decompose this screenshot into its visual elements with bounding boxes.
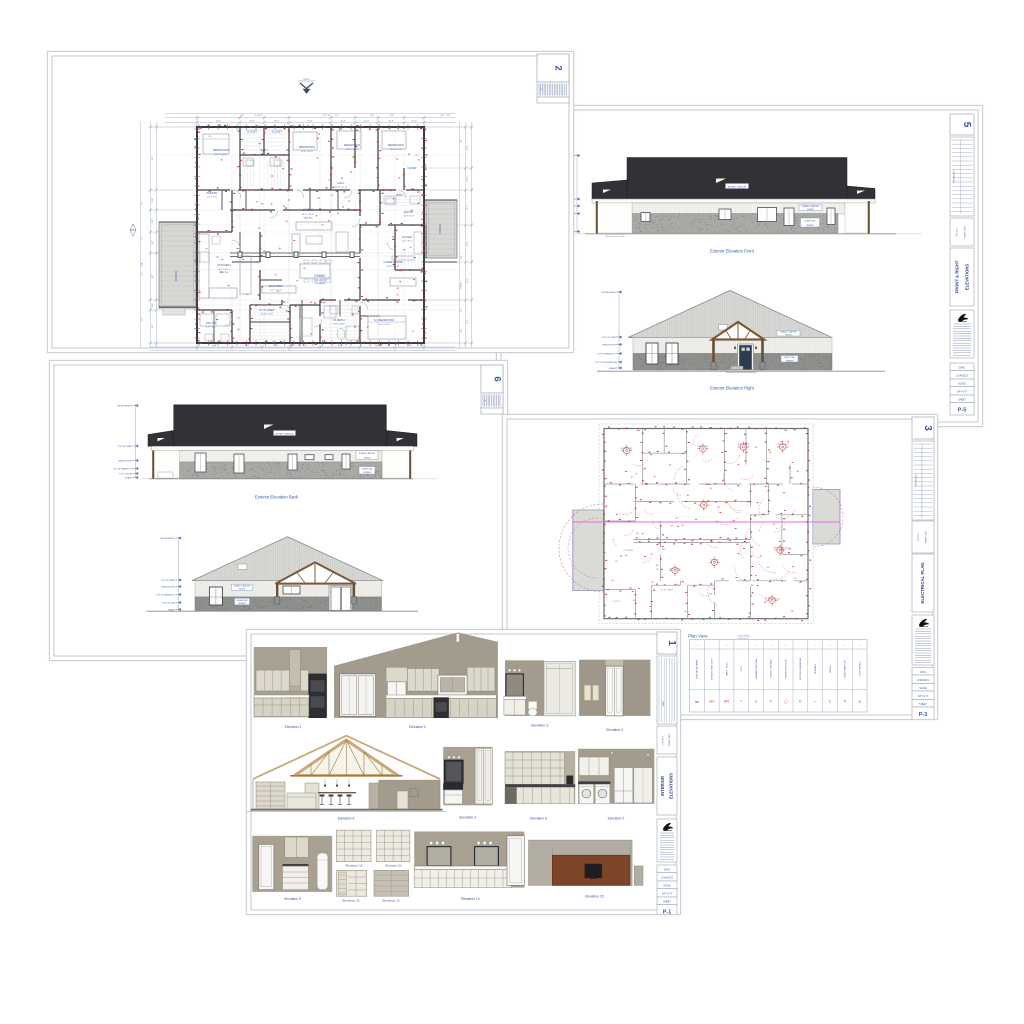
svg-text:VANITY LIGHT: VANITY LIGHT <box>725 661 728 675</box>
svg-text:BEDROOM: BEDROOM <box>621 448 632 450</box>
svg-text:⊙: ⊙ <box>755 700 758 704</box>
svg-text:SHEET: SHEET <box>958 399 966 401</box>
svg-text:GFI: GFI <box>396 294 399 296</box>
svg-text:12'-0" x 12'-6": 12'-0" x 12'-6" <box>301 151 314 153</box>
svg-text:VENEER: VENEER <box>238 603 246 605</box>
svg-text:Elevation 13: Elevation 13 <box>382 899 399 903</box>
svg-text:12'-2" x 12'-0": 12'-2" x 12'-0" <box>346 149 359 151</box>
svg-text:GFI: GFI <box>296 281 299 283</box>
svg-text:P-1: P-1 <box>663 910 671 915</box>
svg-text:LIVING AREA: LIVING AREA <box>737 635 750 638</box>
svg-text:8'-2": 8'-2" <box>255 115 259 117</box>
svg-text:11'-2": 11'-2" <box>467 145 469 150</box>
svg-text:SCALE: SCALE <box>958 382 966 385</box>
svg-text:8'-2": 8'-2" <box>328 115 332 117</box>
svg-text:WINDOW HDR: WINDOW HDR <box>602 344 616 346</box>
svg-text:WINDOW HDR: WINDOW HDR <box>118 460 132 462</box>
svg-text:GFI: GFI <box>412 331 415 333</box>
svg-text:GAME ROOM: GAME ROOM <box>773 546 787 549</box>
svg-text:GFI: GFI <box>724 700 730 704</box>
svg-text:7'-4": 7'-4" <box>142 237 144 241</box>
svg-text:GFI: GFI <box>409 247 412 249</box>
svg-text:BEDROOM: BEDROOM <box>344 143 360 147</box>
svg-text:VENEER: VENEER <box>806 225 814 227</box>
svg-text:8'-2": 8'-2" <box>323 115 327 117</box>
svg-text:7'-0" x 9'-6": 7'-0" x 9'-6" <box>207 197 217 199</box>
svg-text:1/4"=1'-0": 1/4"=1'-0" <box>957 391 968 394</box>
svg-text:—: — <box>784 644 787 647</box>
svg-text:BOARD & BATTEN: BOARD & BATTEN <box>780 331 797 334</box>
svg-text:14'-6" x 20'-2": 14'-6" x 20'-2" <box>218 269 231 271</box>
svg-text:1: 1 <box>666 640 677 646</box>
svg-text:PROJECT: PROJECT <box>662 735 664 745</box>
svg-text:BEDROOM: BEDROOM <box>388 143 404 147</box>
svg-text:GFI: GFI <box>799 582 802 584</box>
svg-text:—: — <box>829 644 832 647</box>
svg-text:GRAND OAKS: GRAND OAKS <box>964 225 967 238</box>
svg-text:GFI: GFI <box>256 202 259 204</box>
svg-text:BATH: BATH <box>261 148 268 152</box>
svg-text:DATE: DATE <box>959 366 965 369</box>
svg-text:9'-6": 9'-6" <box>152 156 154 160</box>
svg-text:PROJECT: PROJECT <box>918 532 920 542</box>
svg-text:Elevation 7: Elevation 7 <box>608 817 625 821</box>
svg-text:▬: ▬ <box>695 700 699 704</box>
svg-text:8'-2": 8'-2" <box>390 115 394 117</box>
svg-text:12'-4": 12'-4" <box>411 120 416 122</box>
svg-text:—: — <box>725 644 728 647</box>
svg-text:1/4"=1'-0": 1/4"=1'-0" <box>662 893 673 896</box>
svg-text:NORTH: NORTH <box>303 79 310 81</box>
svg-text:7'-4": 7'-4" <box>142 317 144 321</box>
svg-text:6'-8": 6'-8" <box>461 139 463 143</box>
svg-text:11'-2": 11'-2" <box>467 241 469 246</box>
svg-text:ELEVATIONS: ELEVATIONS <box>669 773 674 799</box>
svg-text:BEDROOM: BEDROOM <box>777 444 788 446</box>
svg-text:KITCHEN CHANDELIER: KITCHEN CHANDELIER <box>799 657 802 680</box>
svg-text:12'-4": 12'-4" <box>388 120 393 122</box>
svg-text:E: E <box>799 700 802 704</box>
svg-text:LIMESTONE: LIMESTONE <box>784 357 796 359</box>
svg-text:GFI: GFI <box>651 582 654 584</box>
svg-text:TOP OF WAINSCOT: TOP OF WAINSCOT <box>113 467 132 470</box>
svg-text:—: — <box>844 644 847 647</box>
svg-text:GFI: GFI <box>205 248 208 250</box>
svg-text:UTILITY: UTILITY <box>613 601 622 603</box>
svg-text:9'-6": 9'-6" <box>152 324 154 328</box>
svg-text:PORCH: PORCH <box>438 224 442 234</box>
svg-text:ELECTRICAL PLAN: ELECTRICAL PLAN <box>920 563 925 604</box>
svg-text:ASPHALT SHINGLES: ASPHALT SHINGLES <box>275 432 294 435</box>
svg-text:8'-2": 8'-2" <box>335 115 339 117</box>
svg-text:◎: ◎ <box>858 700 861 704</box>
svg-text:M. BEDROOM: M. BEDROOM <box>374 318 394 322</box>
svg-text:2/14/2023: 2/14/2023 <box>661 876 673 880</box>
svg-text:PENDANT: PENDANT <box>814 663 817 673</box>
svg-text:Elevation 14: Elevation 14 <box>461 897 480 901</box>
svg-text:LIVING: LIVING <box>303 208 314 212</box>
svg-text:2/14/2023: 2/14/2023 <box>956 374 968 378</box>
svg-text:◯: ◯ <box>784 700 788 704</box>
svg-text:GFI: GFI <box>209 136 212 138</box>
svg-text:11'-2": 11'-2" <box>467 176 469 181</box>
svg-text:FLUSH MOUNT: FLUSH MOUNT <box>859 661 861 676</box>
svg-text:CEILING FAN LIGHT: CEILING FAN LIGHT <box>844 659 847 679</box>
svg-text:M. BATH: M. BATH <box>333 318 344 322</box>
svg-text:ENTRY: ENTRY <box>404 210 414 214</box>
svg-text:12'-2" x 6'-6": 12'-2" x 6'-6" <box>270 290 281 292</box>
svg-text:8'-2": 8'-2" <box>447 115 451 117</box>
svg-text:RIDGE HEIGHT: RIDGE HEIGHT <box>602 292 617 294</box>
svg-text:LIMESTONE: LIMESTONE <box>805 221 817 223</box>
svg-text:9'-6" x 13'-0": 9'-6" x 13'-0" <box>333 324 344 326</box>
svg-text:BOARD & BATTEN: BOARD & BATTEN <box>359 452 376 455</box>
svg-text:6'-8": 6'-8" <box>461 329 463 333</box>
svg-text:4'-0" x 8'-0": 4'-0" x 8'-0" <box>402 241 412 243</box>
svg-text:Elevation 12: Elevation 12 <box>342 899 359 903</box>
svg-text:CLOSET: CLOSET <box>402 235 413 239</box>
svg-text:Elevation 3: Elevation 3 <box>531 724 548 728</box>
svg-text:WINDOW HDR: WINDOW HDR <box>161 586 175 588</box>
svg-text:—: — <box>770 644 773 647</box>
svg-text:GRADE: GRADE <box>125 476 133 479</box>
svg-text:12'-4": 12'-4" <box>340 120 345 122</box>
svg-text:HALL: HALL <box>337 181 345 185</box>
svg-text:P-5: P-5 <box>958 408 966 414</box>
svg-text:11'-2": 11'-2" <box>467 278 469 283</box>
svg-text:GAME ROOM: GAME ROOM <box>383 260 403 264</box>
svg-text:Elevation 9: Elevation 9 <box>284 897 301 901</box>
svg-text:CLOSET: CLOSET <box>247 130 258 134</box>
svg-text:EXHAUST VENT LIGHT: EXHAUST VENT LIGHT <box>711 657 714 679</box>
svg-text:P-3: P-3 <box>919 712 927 718</box>
svg-text:TOP OF WAINSCOT: TOP OF WAINSCOT <box>156 593 175 596</box>
svg-text:BAR AREA: BAR AREA <box>670 567 681 570</box>
svg-text:GFI: GFI <box>709 488 712 490</box>
svg-text:—: — <box>755 644 758 647</box>
svg-text:GFI: GFI <box>636 533 639 535</box>
svg-text:TOP OF FOUNDATION: TOP OF FOUNDATION <box>595 361 617 364</box>
svg-text:CLOSET: CLOSET <box>407 167 417 170</box>
svg-text:UTILITY: UTILITY <box>206 321 217 325</box>
svg-text:Exterior Elevation Back: Exterior Elevation Back <box>255 495 299 500</box>
svg-text:RIDGE HEIGHT: RIDGE HEIGHT <box>161 538 176 540</box>
svg-text:TOP OF WAINSCOT: TOP OF WAINSCOT <box>597 352 616 355</box>
svg-text:ELEVATIONS: ELEVATIONS <box>965 264 970 290</box>
svg-text:SIDING: SIDING <box>364 458 371 460</box>
svg-text:GRAND OAKS: GRAND OAKS <box>668 733 671 746</box>
svg-text:—: — <box>710 644 713 647</box>
svg-text:—: — <box>814 700 818 704</box>
svg-text:6'-8": 6'-8" <box>461 285 463 289</box>
svg-text:—: — <box>740 644 743 647</box>
svg-text:10'-10" x 9'-6": 10'-10" x 9'-6" <box>261 314 274 316</box>
svg-text:22'-10" x 4'-0": 22'-10" x 4'-0" <box>335 187 348 189</box>
svg-text:GRAND OAKS: GRAND OAKS <box>924 530 927 543</box>
svg-text:GFI: GFI <box>755 447 758 449</box>
svg-text:GFI: GFI <box>767 567 770 569</box>
svg-text:—: — <box>858 644 861 647</box>
svg-text:Elevation 4: Elevation 4 <box>459 816 476 820</box>
svg-text:8'-0" x 8'-0": 8'-0" x 8'-0" <box>404 216 414 218</box>
svg-text:GFI: GFI <box>656 569 659 571</box>
svg-text:12'-2" x 12'-0": 12'-2" x 12'-0" <box>390 149 403 151</box>
svg-text:Plan View: Plan View <box>688 634 708 639</box>
svg-text:8'-2": 8'-2" <box>441 115 445 117</box>
svg-text:M. CLOSET: M. CLOSET <box>259 308 274 312</box>
svg-text:12'-4": 12'-4" <box>216 120 221 122</box>
svg-text:GFI: GFI <box>650 554 653 556</box>
svg-text:Elevation 4: Elevation 4 <box>606 728 623 732</box>
svg-text:10'-8": 10'-8" <box>274 345 279 347</box>
svg-text:SHEET: SHEET <box>663 901 671 903</box>
svg-text:VENEER: VENEER <box>363 472 371 474</box>
svg-text:ASPHALT SHINGLES: ASPHALT SHINGLES <box>728 185 747 188</box>
svg-text:BEDROOM: BEDROOM <box>213 148 229 152</box>
svg-text:DINING: DINING <box>711 560 719 562</box>
svg-text:SCALE: SCALE <box>663 884 671 887</box>
svg-text:C: C <box>829 700 832 704</box>
svg-text:7'-4": 7'-4" <box>142 272 144 276</box>
svg-text:PORCH: PORCH <box>174 271 178 281</box>
svg-text:Elevation 1: Elevation 1 <box>285 725 302 729</box>
svg-text:GFI: GFI <box>615 561 618 563</box>
svg-text:SCALE: SCALE <box>919 687 927 690</box>
svg-text:CLOSET: CLOSET <box>272 130 283 134</box>
svg-text:12'-4": 12'-4" <box>307 120 312 122</box>
svg-text:GFI: GFI <box>237 318 240 320</box>
svg-text:SIDING: SIDING <box>785 334 792 336</box>
svg-text:COFFERED: COFFERED <box>315 283 327 285</box>
svg-text:GRADE: GRADE <box>609 367 617 370</box>
svg-text:RIDGE HEIGHT: RIDGE HEIGHT <box>118 405 133 407</box>
svg-text:1/4"=1'-0": 1/4"=1'-0" <box>918 695 929 698</box>
svg-text:Elevation 11: Elevation 11 <box>385 864 402 868</box>
svg-text:PROJECT: PROJECT <box>957 227 959 237</box>
svg-text:TOP OF SLAB: TOP OF SLAB <box>162 601 176 604</box>
svg-text:3: 3 <box>922 425 933 431</box>
svg-text:VAULTED: VAULTED <box>220 271 229 274</box>
svg-text:GFI: GFI <box>331 195 334 197</box>
svg-text:SMOKE DETECTOR: SMOKE DETECTOR <box>785 659 787 678</box>
svg-text:2/14/2023: 2/14/2023 <box>917 678 929 682</box>
svg-text:7'-4": 7'-4" <box>142 263 144 267</box>
svg-text:110: 110 <box>709 700 715 704</box>
svg-text:BATH: BATH <box>397 193 404 197</box>
svg-text:17'-0" x 14'-0": 17'-0" x 14'-0" <box>378 324 391 326</box>
svg-text:BAR AREA: BAR AREA <box>269 284 283 288</box>
svg-text:BEDROOM: BEDROOM <box>738 444 749 446</box>
svg-text:TOP OF SLAB: TOP OF SLAB <box>119 472 133 475</box>
svg-text:7'-4": 7'-4" <box>142 201 144 205</box>
svg-text:SHEET: SHEET <box>919 704 927 706</box>
svg-text:FRONT & RIGHT: FRONT & RIGHT <box>955 260 960 293</box>
svg-text:8'-2": 8'-2" <box>370 115 374 117</box>
svg-text:LIMESTONE: LIMESTONE <box>362 469 374 471</box>
svg-text:GARBAGE DISPOSAL: GARBAGE DISPOSAL <box>755 658 758 679</box>
svg-text:BOARD & BATTEN: BOARD & BATTEN <box>234 585 251 588</box>
svg-text:9'-6" x 8'-2": 9'-6" x 8'-2" <box>206 327 216 329</box>
svg-text:GFI: GFI <box>671 525 674 527</box>
svg-text:INTERIOR: INTERIOR <box>660 776 665 796</box>
svg-text:BEDROOM: BEDROOM <box>697 446 708 448</box>
svg-text:REVISIONS: REVISIONS <box>954 170 956 182</box>
svg-text:9'-6": 9'-6" <box>152 240 154 244</box>
svg-text:GFI: GFI <box>635 474 638 476</box>
svg-text:9'-6": 9'-6" <box>152 198 154 202</box>
svg-text:ELECTRICAL PANEL: ELECTRICAL PANEL <box>696 659 699 679</box>
svg-text:DINING: DINING <box>314 274 326 278</box>
svg-text:2: 2 <box>553 65 564 70</box>
svg-text:LIVING: LIVING <box>700 502 707 504</box>
svg-text:Elevation 10: Elevation 10 <box>345 864 362 868</box>
svg-text:REVISIONS: REVISIONS <box>916 474 918 486</box>
svg-text:TOP OF PLATE: TOP OF PLATE <box>602 336 617 339</box>
svg-text:11'-2": 11'-2" <box>467 319 469 324</box>
svg-text:KITCHEN: KITCHEN <box>623 550 633 552</box>
svg-text:BEDROOM: BEDROOM <box>299 145 315 149</box>
svg-text:10'-8": 10'-8" <box>338 345 343 347</box>
svg-text:9'-6": 9'-6" <box>152 219 154 223</box>
svg-text:10'-8": 10'-8" <box>212 345 217 347</box>
svg-text:DATE: DATE <box>664 868 670 871</box>
svg-text:SIDING: SIDING <box>239 589 246 591</box>
svg-text:GFCI: GFCI <box>741 666 743 671</box>
svg-text:Elevation 5: Elevation 5 <box>338 817 355 821</box>
svg-text:VENEER: VENEER <box>786 360 794 362</box>
svg-text:M. CLOSET: M. CLOSET <box>661 590 673 592</box>
svg-text:SWITCH: SWITCH <box>830 665 832 673</box>
svg-text:11'-2" x 13'-0": 11'-2" x 13'-0" <box>215 154 227 156</box>
svg-text:—: — <box>696 644 699 647</box>
svg-text:—: — <box>814 644 817 647</box>
svg-text:DATE: DATE <box>920 671 926 674</box>
svg-text:24'-4" x 19'-6": 24'-4" x 19'-6" <box>302 214 315 216</box>
svg-text:LIMESTONE: LIMESTONE <box>237 600 249 602</box>
svg-text:CEILING CENTRAL: CEILING CENTRAL <box>770 659 773 678</box>
svg-text:8'-2": 8'-2" <box>241 115 245 117</box>
svg-text:8'-2": 8'-2" <box>259 115 263 117</box>
svg-text:12'-4": 12'-4" <box>249 120 254 122</box>
svg-text:Elevation 15: Elevation 15 <box>585 895 604 899</box>
svg-text:✕: ✕ <box>843 700 846 704</box>
svg-text:9'-6": 9'-6" <box>152 274 154 278</box>
svg-text:BOARD & BATTEN: BOARD & BATTEN <box>802 205 819 208</box>
svg-text:GFI: GFI <box>274 275 277 277</box>
svg-text:10'-8": 10'-8" <box>245 345 250 347</box>
svg-text:F: F <box>770 700 772 704</box>
svg-text:TOP OF PLATE: TOP OF PLATE <box>161 579 176 582</box>
svg-text:6'-8": 6'-8" <box>461 308 463 312</box>
svg-text:Exterior Elevation Front: Exterior Elevation Front <box>710 249 755 254</box>
svg-text:Elevation 6: Elevation 6 <box>530 817 547 821</box>
svg-text:11'-2": 11'-2" <box>467 205 469 210</box>
svg-text:12'-4": 12'-4" <box>364 120 369 122</box>
svg-text:Elevation 2: Elevation 2 <box>409 725 426 729</box>
svg-text:12'-4": 12'-4" <box>274 120 279 122</box>
svg-text:13'-8" x 16'-0": 13'-8" x 16'-0" <box>387 266 400 268</box>
svg-text:5: 5 <box>961 122 972 128</box>
svg-text:6: 6 <box>492 376 503 381</box>
svg-text:DATE: DATE <box>662 700 665 706</box>
svg-text:Exterior Elevation Right: Exterior Elevation Right <box>710 386 755 391</box>
svg-text:TOP OF PLATE: TOP OF PLATE <box>118 445 133 448</box>
svg-text:14'-8" x 13'-2": 14'-8" x 13'-2" <box>314 280 327 282</box>
svg-text:M. BEDROOM: M. BEDROOM <box>765 598 780 600</box>
svg-text:GFI: GFI <box>630 477 633 479</box>
svg-text:—: — <box>799 644 802 647</box>
svg-text:SIDING: SIDING <box>807 209 814 211</box>
svg-text:=: = <box>740 700 742 704</box>
svg-text:GFI: GFI <box>794 578 797 580</box>
svg-text:VAULTED: VAULTED <box>304 216 313 219</box>
svg-text:PANTRY: PANTRY <box>206 191 217 195</box>
svg-text:KITCHEN: KITCHEN <box>217 263 230 267</box>
